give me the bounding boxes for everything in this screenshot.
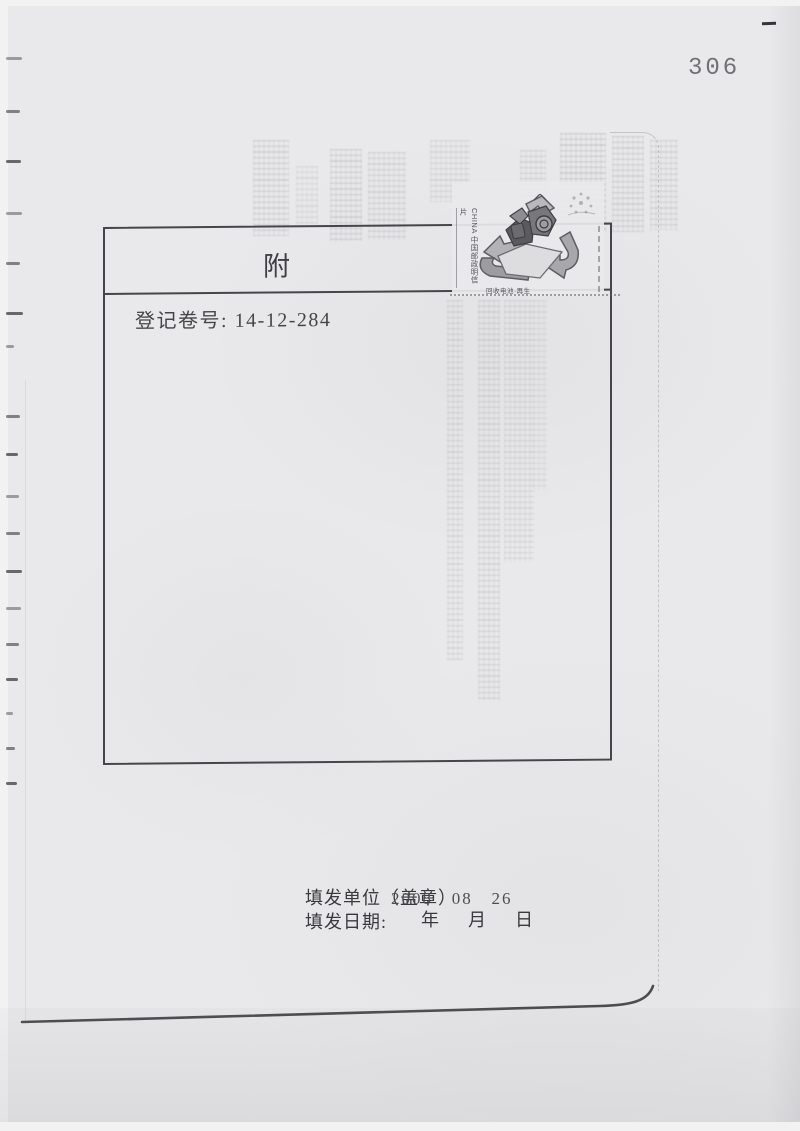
binding-mark	[6, 712, 13, 715]
scanned-document-page: { "page": { "number": "306" }, "box": { …	[0, 0, 800, 1131]
binding-mark	[6, 607, 21, 610]
scan-frame-edge	[0, 1122, 800, 1131]
binding-mark	[6, 262, 20, 265]
appendix-box: 附 记 登记卷号: 14-12-284	[103, 223, 612, 765]
binding-mark	[6, 110, 20, 113]
underlying-page-shadow	[0, 1008, 800, 1131]
binding-mark	[6, 495, 19, 498]
register-value: 14-12-284	[235, 309, 332, 332]
binding-mark	[6, 570, 22, 573]
binding-mark	[6, 57, 22, 60]
binding-mark	[6, 312, 23, 315]
page-number: 306	[688, 55, 740, 82]
binding-mark	[6, 160, 21, 163]
binding-mark	[6, 532, 20, 535]
register-label: 登记卷号:	[135, 310, 228, 333]
binding-mark	[6, 453, 18, 456]
stamp-perforation-row	[450, 294, 620, 296]
stamp-perforation-edge	[598, 226, 600, 292]
postage-stamp: CHINA 中国邮政明信片 回收电池·再生	[452, 182, 604, 296]
register-number-row: 登记卷号: 14-12-284	[135, 303, 331, 334]
binding-mark	[6, 212, 22, 215]
recycle-waste-illustration	[470, 194, 590, 286]
box-title-left: 附	[263, 244, 292, 283]
binding-mark	[6, 643, 19, 646]
binding-mark	[6, 345, 14, 348]
issue-date-label: 填发日期:	[305, 908, 387, 934]
year-month-day-label: 年 月 日	[421, 906, 533, 932]
page-edge-seam	[25, 380, 26, 1020]
binding-mark	[6, 747, 15, 750]
binding-mark	[6, 782, 17, 785]
binding-mark	[6, 678, 18, 681]
corner-dash-mark	[762, 22, 776, 25]
binding-mark	[6, 415, 20, 418]
